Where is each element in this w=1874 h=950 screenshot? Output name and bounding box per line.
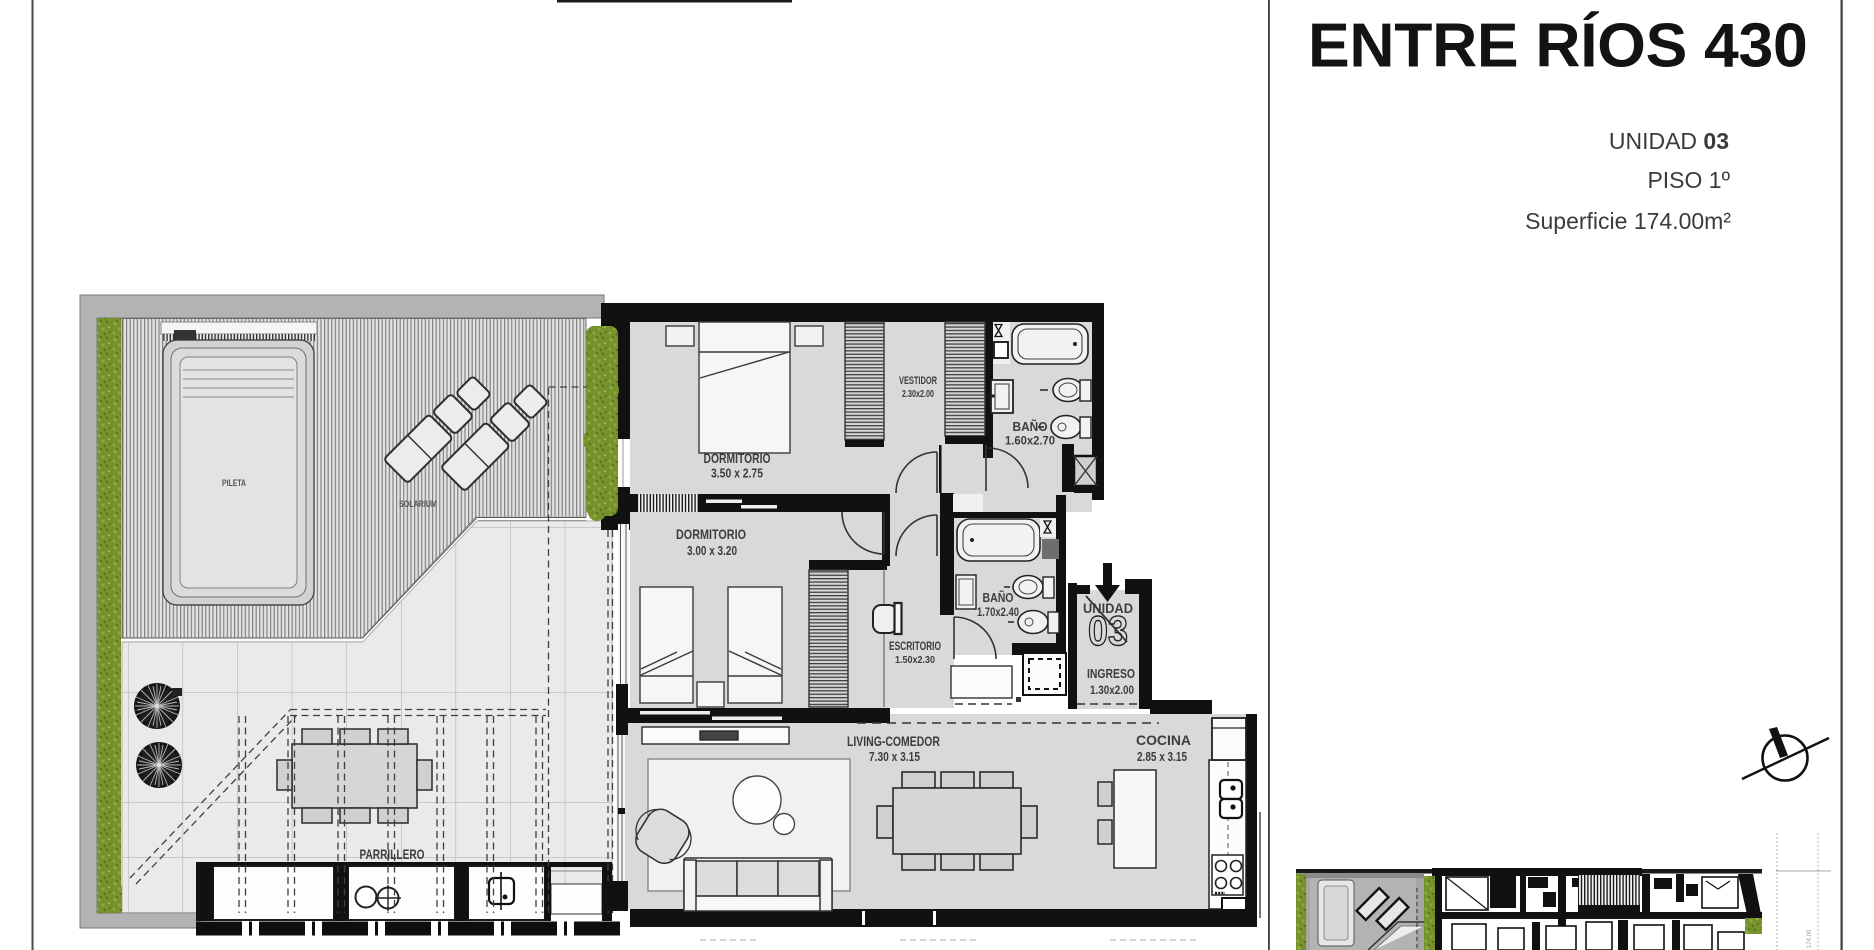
svg-text:1.70x2.40: 1.70x2.40 — [977, 605, 1019, 619]
svg-text:LIVING-COMEDOR: LIVING-COMEDOR — [847, 733, 940, 749]
svg-text:1.30x2.00: 1.30x2.00 — [1090, 683, 1134, 697]
svg-text:2.85 x 3.15: 2.85 x 3.15 — [1137, 750, 1187, 764]
svg-text:BAÑO: BAÑO — [983, 590, 1014, 605]
svg-text:COCINA: COCINA — [1136, 732, 1191, 748]
svg-text:Superficie 174.00m²: Superficie 174.00m² — [1525, 208, 1731, 234]
svg-text:3.50 x 2.75: 3.50 x 2.75 — [711, 467, 763, 481]
svg-text:INGRESO: INGRESO — [1087, 666, 1135, 681]
svg-text:03: 03 — [1088, 607, 1128, 654]
svg-text:PISO 1º: PISO 1º — [1647, 167, 1730, 193]
svg-text:3.00 x 3.20: 3.00 x 3.20 — [687, 544, 737, 558]
svg-text:174.00: 174.00 — [1807, 929, 1813, 948]
svg-text:7.30 x 3.15: 7.30 x 3.15 — [869, 750, 920, 764]
svg-text:BAÑO: BAÑO — [1013, 419, 1048, 434]
svg-text:VESTIDOR: VESTIDOR — [899, 375, 937, 387]
svg-text:DORMITORIO: DORMITORIO — [704, 450, 771, 466]
svg-text:DORMITORIO: DORMITORIO — [676, 526, 746, 542]
svg-text:ESCRITORIO: ESCRITORIO — [889, 641, 941, 653]
svg-text:1.50x2.30: 1.50x2.30 — [895, 654, 935, 666]
svg-text:UNIDAD 03: UNIDAD 03 — [1609, 128, 1729, 154]
svg-text:PARRILLERO: PARRILLERO — [360, 846, 425, 862]
svg-text:2.30x2.00: 2.30x2.00 — [902, 389, 934, 400]
svg-text:PILETA: PILETA — [222, 478, 246, 489]
svg-text:SOLARIUM: SOLARIUM — [399, 499, 437, 510]
svg-text:1.60x2.70: 1.60x2.70 — [1005, 434, 1055, 448]
svg-text:ENTRE RÍOS 430: ENTRE RÍOS 430 — [1308, 11, 1807, 81]
